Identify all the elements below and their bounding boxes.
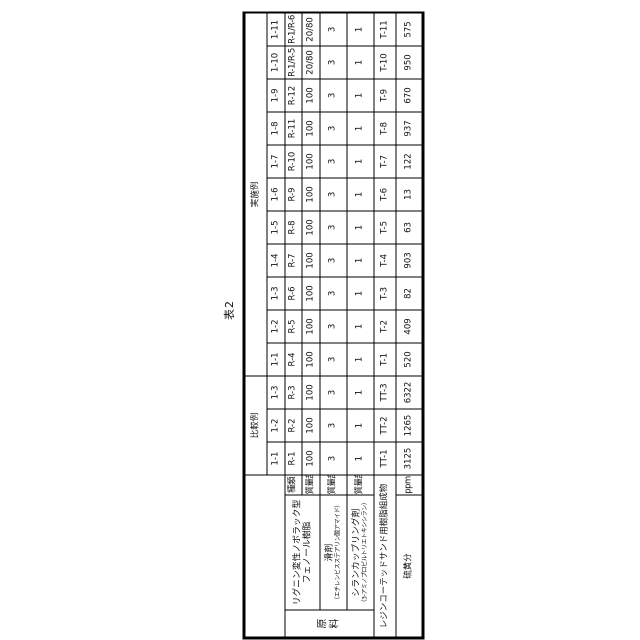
sulfur-value-cell: 82 xyxy=(396,277,422,310)
column-id: 1-3 xyxy=(267,376,285,409)
raw-material-label: 原料 xyxy=(285,610,374,637)
corner-cell xyxy=(245,475,285,637)
sulfur-value-cell: 520 xyxy=(396,343,422,376)
lubricant-cell: 3 xyxy=(320,343,347,376)
resin-mass-cell: 100 xyxy=(302,145,320,178)
column-id: 1-11 xyxy=(267,13,285,46)
sulfur-value-cell: 937 xyxy=(396,112,422,145)
lubricant-name: 滑剤 xyxy=(325,496,335,610)
rcs-id-cell: T-3 xyxy=(374,277,396,310)
resin-mass-cell: 100 xyxy=(302,79,320,112)
sulfur-value-cell: 903 xyxy=(396,244,422,277)
lubricant-cell: 3 xyxy=(320,46,347,79)
lubricant-cell: 3 xyxy=(320,409,347,442)
rcs-id-cell: T-2 xyxy=(374,310,396,343)
resin-kind-cell: R-8 xyxy=(285,211,302,244)
lubricant-cell: 3 xyxy=(320,145,347,178)
lubricant-cell: 3 xyxy=(320,244,347,277)
rcs-id-cell: T-7 xyxy=(374,145,396,178)
column-id: 1-4 xyxy=(267,244,285,277)
resin-item-label: リグニン変性ノボラック型 フェノール樹脂 xyxy=(285,495,320,610)
page: 表2 比較例 実施例 1-11-21-31-11-21-31-41-51-61-… xyxy=(0,0,640,640)
lubricant-note: （エチレンビスステアリン酸アマイド） xyxy=(335,496,342,610)
lubricant-cell: 3 xyxy=(320,178,347,211)
column-id: 1-8 xyxy=(267,112,285,145)
silane-cell: 1 xyxy=(347,46,374,79)
resin-mass-cell: 100 xyxy=(302,211,320,244)
resin-kind-cell: R-9 xyxy=(285,178,302,211)
lubricant-cell: 3 xyxy=(320,277,347,310)
rcs-id-cell: TT-2 xyxy=(374,409,396,442)
resin-mass-cell: 100 xyxy=(302,277,320,310)
resin-mass-cell: 100 xyxy=(302,409,320,442)
lubricant-cell: 3 xyxy=(320,211,347,244)
column-id: 1-9 xyxy=(267,79,285,112)
lubricant-cell: 3 xyxy=(320,13,347,46)
group-comparative-label: 比較例 xyxy=(245,376,267,475)
resin-kind-cell: R-6 xyxy=(285,277,302,310)
silane-cell: 1 xyxy=(347,343,374,376)
column-id: 1-7 xyxy=(267,145,285,178)
silane-cell: 1 xyxy=(347,79,374,112)
resin-kind-cell: R-7 xyxy=(285,244,302,277)
resin-kind-sublabel: 種類 xyxy=(285,475,302,495)
sulfur-value-cell: 122 xyxy=(396,145,422,178)
column-id: 1-2 xyxy=(267,409,285,442)
resin-mass-cell: 100 xyxy=(302,244,320,277)
resin-mass-cell: 100 xyxy=(302,178,320,211)
resin-kind-cell: R-5 xyxy=(285,310,302,343)
resin-mass-sublabel: 質量部 xyxy=(302,475,320,495)
silane-cell: 1 xyxy=(347,13,374,46)
sulfur-value-cell: 3125 xyxy=(396,442,422,475)
rcs-id-cell: T-10 xyxy=(374,46,396,79)
rcs-id-cell: TT-3 xyxy=(374,376,396,409)
sulfur-value-cell: 63 xyxy=(396,211,422,244)
silane-cell: 1 xyxy=(347,178,374,211)
column-id: 1-6 xyxy=(267,178,285,211)
rcs-id-cell: T-9 xyxy=(374,79,396,112)
rcs-id-cell: T-4 xyxy=(374,244,396,277)
silane-cell: 1 xyxy=(347,211,374,244)
silane-name: シランカップリング剤 xyxy=(352,496,362,610)
rcs-row-label: レジンコーテッドサンド用樹脂組成物 xyxy=(374,475,396,637)
rcs-id-cell: T-5 xyxy=(374,211,396,244)
sulfur-value-cell: 1265 xyxy=(396,409,422,442)
lubricant-cell: 3 xyxy=(320,79,347,112)
column-id: 1-5 xyxy=(267,211,285,244)
column-id: 1-3 xyxy=(267,277,285,310)
silane-cell: 1 xyxy=(347,244,374,277)
silane-cell: 1 xyxy=(347,112,374,145)
data-table: 比較例 実施例 1-11-21-31-11-21-31-41-51-61-71-… xyxy=(245,12,423,637)
resin-mass-cell: 100 xyxy=(302,310,320,343)
group-examples-label: 実施例 xyxy=(245,13,267,376)
sulfur-value-cell: 670 xyxy=(396,79,422,112)
silane-item-label: シランカップリング剤 （3-アミノプロピルトリエトキシシラン） xyxy=(347,495,374,610)
column-id: 1-1 xyxy=(267,442,285,475)
silane-note: （3-アミノプロピルトリエトキシシラン） xyxy=(362,496,369,610)
resin-kind-cell: R-3 xyxy=(285,376,302,409)
resin-kind-cell: R-1/R-5 xyxy=(285,46,302,79)
silane-cell: 1 xyxy=(347,145,374,178)
silane-cell: 1 xyxy=(347,277,374,310)
resin-name-line1: リグニン変性ノボラック型 xyxy=(292,496,302,610)
resin-kind-cell: R-1 xyxy=(285,442,302,475)
sulfur-value-cell: 409 xyxy=(396,310,422,343)
column-id: 1-10 xyxy=(267,46,285,79)
sulfur-value-cell: 13 xyxy=(396,178,422,211)
resin-name-line2: フェノール樹脂 xyxy=(303,496,313,610)
sulfur-row-label: 硫黄分 xyxy=(396,495,422,637)
resin-kind-cell: R-12 xyxy=(285,79,302,112)
rcs-id-cell: T-11 xyxy=(374,13,396,46)
resin-mass-cell: 100 xyxy=(302,112,320,145)
sulfur-unit-label: ppm xyxy=(396,475,422,495)
silane-cell: 1 xyxy=(347,409,374,442)
table-frame: 比較例 実施例 1-11-21-31-11-21-31-41-51-61-71-… xyxy=(243,12,425,640)
resin-mass-cell: 20/80 xyxy=(302,46,320,79)
rcs-id-cell: T-1 xyxy=(374,343,396,376)
rcs-id-cell: TT-1 xyxy=(374,442,396,475)
lubricant-cell: 3 xyxy=(320,376,347,409)
silane-cell: 1 xyxy=(347,442,374,475)
lubricant-mass-sublabel: 質量部 xyxy=(320,475,347,495)
lubricant-cell: 3 xyxy=(320,442,347,475)
lubricant-cell: 3 xyxy=(320,112,347,145)
resin-mass-cell: 100 xyxy=(302,442,320,475)
silane-cell: 1 xyxy=(347,310,374,343)
resin-kind-cell: R-2 xyxy=(285,409,302,442)
silane-cell: 1 xyxy=(347,376,374,409)
resin-mass-cell: 20/80 xyxy=(302,13,320,46)
resin-kind-cell: R-11 xyxy=(285,112,302,145)
rcs-id-cell: T-8 xyxy=(374,112,396,145)
sulfur-value-cell: 6322 xyxy=(396,376,422,409)
table-container: 比較例 実施例 1-11-21-31-11-21-31-41-51-61-71-… xyxy=(243,12,422,640)
resin-mass-cell: 100 xyxy=(302,343,320,376)
resin-kind-cell: R-10 xyxy=(285,145,302,178)
resin-mass-cell: 100 xyxy=(302,376,320,409)
lubricant-item-label: 滑剤 （エチレンビスステアリン酸アマイド） xyxy=(320,495,347,610)
rcs-id-cell: T-6 xyxy=(374,178,396,211)
resin-kind-cell: R-1/R-6 xyxy=(285,13,302,46)
column-id: 1-1 xyxy=(267,343,285,376)
sulfur-value-cell: 575 xyxy=(396,13,422,46)
sulfur-value-cell: 950 xyxy=(396,46,422,79)
table-title: 表2 xyxy=(215,294,243,326)
resin-kind-cell: R-4 xyxy=(285,343,302,376)
lubricant-cell: 3 xyxy=(320,310,347,343)
column-id: 1-2 xyxy=(267,310,285,343)
silane-mass-sublabel: 質量部 xyxy=(347,475,374,495)
